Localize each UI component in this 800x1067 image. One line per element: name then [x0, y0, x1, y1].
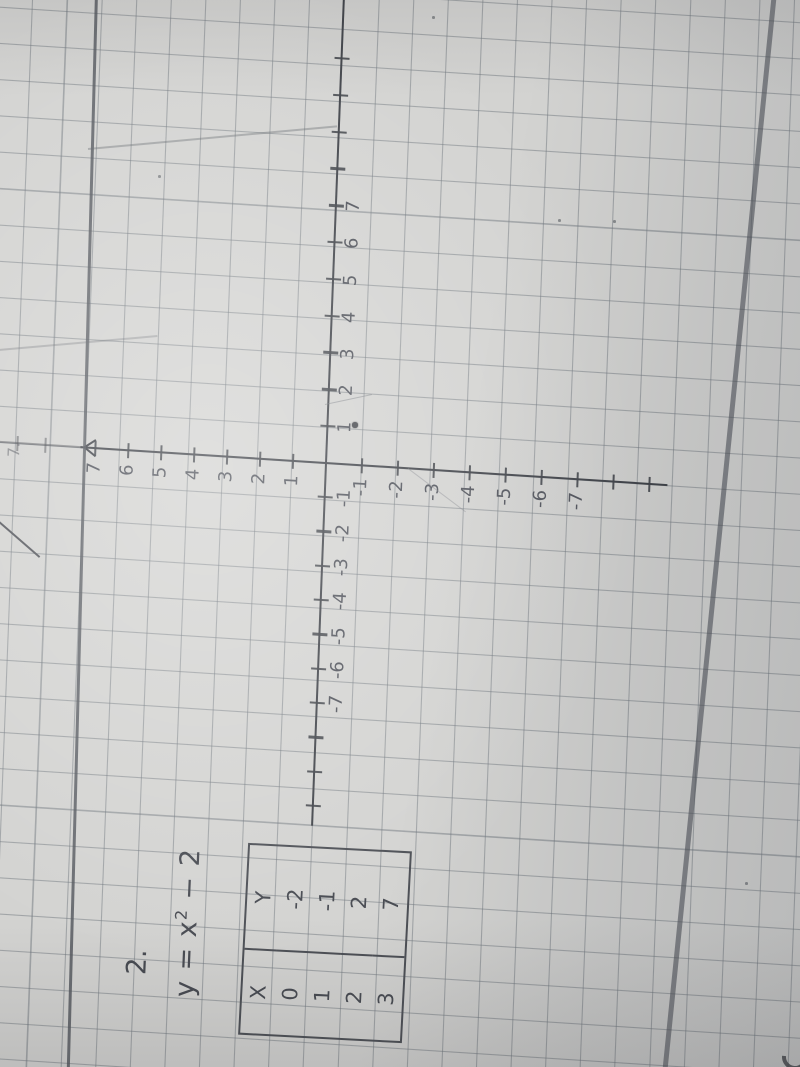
tick-mark	[334, 57, 349, 60]
axis-label: -1	[352, 478, 371, 497]
axis-label: 4	[184, 468, 202, 481]
stray-tick-mark	[44, 438, 47, 453]
plotted-point	[352, 422, 358, 428]
tick-mark	[94, 441, 97, 456]
tick-mark	[324, 314, 339, 317]
pencil-speck	[745, 882, 748, 885]
equation: y = x2 − 2	[168, 848, 206, 998]
tick-mark	[432, 462, 435, 477]
handwriting-block: 2. y = x2 − 2	[115, 840, 256, 1067]
table-cell: -1	[309, 848, 346, 953]
problem-number: 2.	[121, 949, 153, 976]
tick-mark	[327, 241, 342, 244]
tick-mark	[333, 94, 348, 97]
axis-label: -5	[496, 487, 515, 506]
tick-mark	[292, 453, 295, 468]
axis-label: 4	[340, 311, 358, 324]
tick-mark	[360, 458, 363, 473]
tick-mark	[308, 736, 323, 739]
pencil-speck	[158, 175, 161, 178]
axis-label: -6	[329, 660, 348, 679]
tick-mark	[330, 167, 345, 170]
axis-label: -5	[330, 626, 349, 645]
tick-mark	[321, 388, 336, 391]
axis-label: 5	[151, 466, 169, 479]
tick-mark	[313, 598, 328, 601]
tick-mark	[576, 472, 579, 487]
tick-mark	[540, 469, 543, 484]
tick-mark	[259, 451, 262, 466]
tick-mark	[160, 445, 163, 460]
axis-label: -2	[334, 523, 353, 542]
tick-mark	[309, 701, 324, 704]
y-axis-line	[80, 446, 667, 487]
axis-label: 3	[217, 470, 235, 483]
tick-mark	[331, 130, 346, 133]
tick-mark	[311, 667, 326, 670]
axis-label: -3	[333, 558, 352, 577]
axis-label: -6	[531, 489, 550, 508]
axis-label: 3	[339, 348, 357, 361]
notebook-photo: 7. 1234567-1-2-3-4-5-6-71234567-1-2-3-4-…	[0, 0, 800, 1067]
values-table: XY0-21-12237	[238, 843, 412, 1043]
tick-mark	[468, 465, 471, 480]
tick-mark	[320, 425, 335, 428]
pencil-speck	[558, 219, 561, 222]
axis-label: 6	[118, 464, 136, 477]
axis-label: 7	[85, 462, 103, 475]
table-cell: 2	[340, 850, 377, 955]
axis-label: 2	[338, 384, 356, 397]
tick-mark	[193, 447, 196, 462]
tick-mark	[328, 204, 343, 207]
axis-label: 7	[345, 200, 363, 213]
tick-mark	[316, 530, 331, 533]
table-header-cell: Y	[245, 845, 282, 950]
tick-mark	[323, 351, 338, 354]
tick-mark	[307, 770, 322, 773]
axis-label: 6	[343, 237, 361, 250]
table-cell: 1	[304, 952, 340, 1038]
axis-label: -7	[327, 695, 346, 714]
axis-label: -2	[388, 480, 407, 499]
values-table-wrapper: XY0-21-12237	[238, 843, 412, 1043]
table-header-cell: X	[240, 948, 276, 1034]
equation-exponent: 2	[172, 908, 191, 920]
tick-mark	[396, 460, 399, 475]
axis-label: 5	[342, 274, 360, 287]
tick-mark	[315, 564, 330, 567]
table-cell: 3	[368, 955, 404, 1041]
axis-label: -7	[567, 492, 586, 511]
axis-label: -4	[460, 485, 479, 504]
table-cell: 0	[272, 950, 308, 1036]
tick-mark	[612, 474, 615, 489]
table-cell: 2	[336, 953, 372, 1039]
tick-mark	[504, 467, 507, 482]
table-cell: 7	[372, 852, 409, 957]
tick-mark	[317, 496, 332, 499]
tick-mark	[312, 633, 327, 636]
table-cell: -2	[277, 847, 314, 952]
axis-label: 2	[250, 472, 268, 485]
tick-mark	[648, 476, 651, 491]
stray-axis-label: 7.	[6, 442, 23, 458]
tick-mark	[127, 443, 130, 458]
tick-mark	[326, 277, 341, 280]
pencil-speck	[432, 16, 435, 19]
tick-mark	[226, 449, 229, 464]
axis-label: 1	[283, 475, 301, 488]
tick-mark	[305, 804, 320, 807]
axis-label: -4	[331, 592, 350, 611]
pencil-speck	[613, 220, 616, 223]
